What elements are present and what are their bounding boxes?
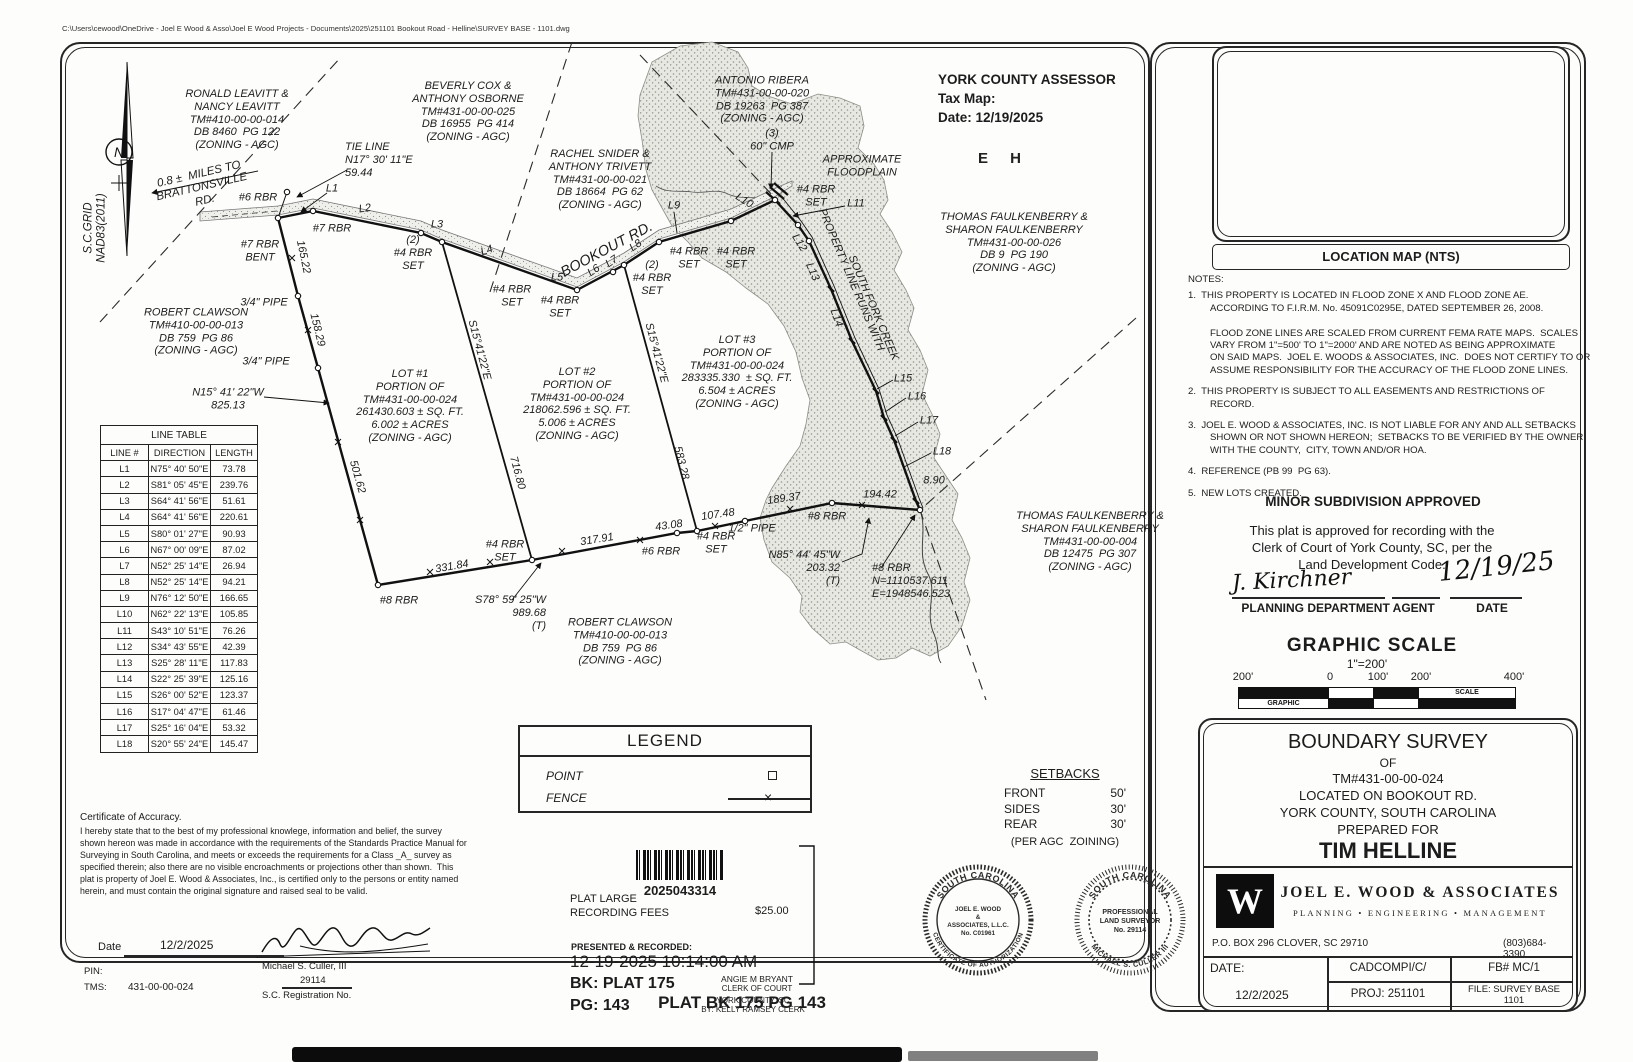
line-table-cell: L4 [101,509,149,525]
seal-center-line: LAND SURVEYOR [1100,918,1161,925]
assessor-stamp: YORK COUNTY ASSESSOR Tax Map: Date: 12/1… [938,70,1116,127]
line-table-cell: 90.93 [211,525,258,541]
surveyor-seal: SOUTH CAROLINA MICHAEL S. CULLER III PRO… [1072,862,1188,978]
firm-tagline: PLANNING • ENGINEERING • MANAGEMENT [1293,908,1547,918]
line-table-cell: L5 [101,525,149,541]
line-table-cell: L6 [101,542,149,558]
location-map-caption: LOCATION MAP (NTS) [1212,244,1570,270]
setback-key: SIDES [1004,802,1040,818]
line-table-row: L16S17° 04' 47"E61.46 [101,704,258,720]
line-table-cell: S43° 10' 51"E [149,623,211,639]
survey-prepared: PREPARED FOR [1198,822,1578,837]
firm-name: JOEL E. WOOD & ASSOCIATES [1281,884,1560,902]
north-arrow-icon: N [106,62,133,256]
scale-tick: 200' [1411,671,1431,683]
floodplain-area [638,42,970,663]
line-table-row: L15S26° 00' 52"E123.37 [101,687,258,703]
line-table-cell: 53.32 [211,720,258,736]
clerk-name: ANGIE M BRYANT [721,974,793,984]
line-table-cell: 125.16 [211,671,258,687]
setbacks-note: (PER AGC ZOINING) [990,836,1140,848]
line-table-cell: L10 [101,606,149,622]
recording-bracket [799,846,814,984]
legend-title: LEGEND [520,727,810,757]
line-table-cell: L15 [101,687,149,703]
note-item: 3. JOEL E. WOOD & ASSOCIATES, INC. IS NO… [1188,420,1580,457]
surveyor-name: Michael S. Culler, III [262,961,346,972]
authorization-seal: SOUTH CAROLINA CERTIFICATE OF AUTHORIZAT… [920,862,1036,978]
line-table-row: L17S25° 16' 04"E53.32 [101,720,258,736]
setback-key: REAR [1004,817,1037,833]
scan-artifact [908,1051,1098,1061]
line-table-cell: N52° 25' 14"E [149,558,211,574]
seal-center-line: JOEL E. WOOD [955,906,1002,913]
line-table-title: LINE TABLE [101,426,258,445]
survey-title: BOUNDARY SURVEY [1198,731,1578,754]
line-table-cell: 145.47 [211,736,258,752]
line-table-cell: N67° 00' 09"E [149,542,211,558]
line-table-cell: S17° 04' 47"E [149,704,211,720]
graphic-scale-title: GRAPHIC SCALE [1287,635,1457,657]
line-table-cell: 26.94 [211,558,258,574]
setback-row: FRONT50' [1004,786,1126,802]
tb-cad: CADCOMPI/C/ [1350,962,1427,974]
line-table-header: DIRECTION [149,445,211,461]
line-table-header: LENGTH [211,445,258,461]
line-table-cell: S20° 55' 24"E [149,736,211,752]
line-table-cell: S25° 28' 11"E [149,655,211,671]
line-table-row: L4S64° 41' 56"E220.61 [101,509,258,525]
setback-value: 30' [1110,802,1126,818]
scan-artifact [292,1047,902,1062]
certificate-body: I hereby state that to the best of my pr… [80,826,467,897]
line-table-row: L8N52° 25' 14"E94.21 [101,574,258,590]
line-table-cell: S64° 41' 56"E [149,509,211,525]
setbacks: SETBACKS FRONT50'SIDES30'REAR30' (PER AG… [990,766,1140,848]
survey-of: OF [1198,756,1578,770]
assessor-taxmap: Tax Map: [938,89,1116,108]
legend-point-label: POINT [546,769,583,783]
line-table-cell: N52° 25' 14"E [149,574,211,590]
line-table-cell: L16 [101,704,149,720]
line-table-cell: S80° 01' 27"E [149,525,211,541]
assessor-date: Date: 12/19/2025 [938,108,1116,127]
line-table-cell: 94.21 [211,574,258,590]
recording-presented: PRESENTED & RECORDED: [571,942,692,952]
line-table-row: L7N52° 25' 14"E26.94 [101,558,258,574]
line-table-cell: N76° 12' 50"E [149,590,211,606]
line-table-row: L5S80° 01' 27"E90.93 [101,525,258,541]
plat-sheet: C:\Users\cewood\OneDrive - Joel E Wood &… [0,0,1633,1062]
plat-book-footer: PLAT BK 175 PG 143 [658,993,826,1013]
line-table-cell: S34° 43' 55"E [149,639,211,655]
line-table-row: L6N67° 00' 09"E87.02 [101,542,258,558]
line-table-cell: N75° 40' 50"E [149,461,211,477]
line-table-row: L3S64° 41' 56"E51.61 [101,493,258,509]
line-table-row: L11S43° 10' 51"E76.26 [101,623,258,639]
line-table-cell: S26° 00' 52"E [149,687,211,703]
registration-number: 29114 [300,975,326,986]
line-table-row: L12S34° 43' 55"E42.39 [101,639,258,655]
line-table-cell: 87.02 [211,542,258,558]
svg-text:SOUTH CAROLINA: SOUTH CAROLINA [935,870,1022,900]
line-table-cell: 73.78 [211,461,258,477]
location-map [1212,46,1570,242]
line-table-row: L9N76° 12' 50"E166.65 [101,590,258,606]
svg-text:CERTIFICATE OF AUTHORIZATION: CERTIFICATE OF AUTHORIZATION [931,932,1025,969]
client-name: TIM HELLINE [1198,838,1578,864]
setback-value: 30' [1110,817,1126,833]
certificate-heading: Certificate of Accuracy. [80,812,182,823]
tb-fb: FB# MC/1 [1488,962,1540,974]
line-table-row: L18S20° 55' 24"E145.47 [101,736,258,752]
seal-arc-bottom: CERTIFICATE OF AUTHORIZATION [931,932,1025,969]
line-table-cell: S81° 05' 45"E [149,477,211,493]
setback-key: FRONT [1004,786,1045,802]
approval-title: MINOR SUBDIVISION APPROVED [1265,494,1481,509]
line-table-cell: L3 [101,493,149,509]
line-table-cell: L14 [101,671,149,687]
line-table-cell: L1 [101,461,149,477]
recording-datetime: 12-19-2025 10:14:00 AM [570,952,757,972]
cert-date: 12/2/2025 [160,938,213,952]
legend-fence-label: FENCE [546,791,587,805]
note-item: 4. REFERENCE (PB 99 PG 63). [1188,466,1580,478]
tms-label: TMS: [84,982,107,993]
approval-date-label: DATE [1476,601,1508,615]
scale-bar-label: SCALE [1419,688,1515,698]
scale-tick: 200' [1233,671,1253,683]
line-table-row: L2S81° 05' 45"E239.76 [101,477,258,493]
line-table-header: LINE # [101,445,149,461]
scale-bar: SCALE GRAPHIC [1238,687,1516,709]
setback-row: SIDES30' [1004,802,1126,818]
line-table-cell: 166.65 [211,590,258,606]
barcode [636,850,724,880]
line-table-cell: 220.61 [211,509,258,525]
clerk-title: CLERK OF COURT [722,984,793,993]
line-table-row: L14S22° 25' 39"E125.16 [101,671,258,687]
tb-file: FILE: SURVEY BASE 1101 [1468,984,1560,1006]
cert-date-label: Date [98,941,121,953]
tb-date: 12/2/2025 [1235,988,1288,1002]
note-item: 2. THIS PROPERTY IS SUBJECT TO ALL EASEM… [1188,386,1580,411]
agent-label: PLANNING DEPARTMENT AGENT [1241,601,1434,615]
seal-center-line: & [976,914,981,921]
note-item: 1. THIS PROPERTY IS LOCATED IN FLOOD ZON… [1188,290,1580,377]
scale-tick: 400' [1504,671,1524,683]
setback-row: REAR30' [1004,817,1126,833]
line-table-cell: 123.37 [211,687,258,703]
fence-symbol-x: × [764,789,772,805]
notes-heading: NOTES: [1188,274,1580,286]
line-table-cell: L8 [101,574,149,590]
line-table-cell: L7 [101,558,149,574]
line-table-cell: L17 [101,720,149,736]
line-table-cell: S64° 41' 56"E [149,493,211,509]
tms-value: 431-00-00-024 [128,982,194,993]
seal-center-line: PROFESSIONAL [1102,909,1158,916]
line-table: LINE TABLE LINE # DIRECTION LENGTH L1N75… [100,425,258,753]
line-table-cell: 61.46 [211,704,258,720]
recording-fee-amount: $25.00 [755,905,789,917]
line-table-cell: L11 [101,623,149,639]
survey-tm: TM#431-00-00-024 [1198,771,1578,786]
firm-address: P.O. BOX 296 CLOVER, SC 29710 [1212,938,1368,949]
seal-center-line: ASSOCIATES, L.L.C. [947,922,1009,929]
recording-fee-label: PLAT LARGE RECORDING FEES [570,893,669,920]
line-table-cell: S25° 16' 04"E [149,720,211,736]
line-table-cell: 239.76 [211,477,258,493]
line-table-cell: L13 [101,655,149,671]
graphic-scale-ratio: 1"=200' [1347,657,1387,671]
seal-center-line: No. C01961 [961,930,995,937]
surveyor-signature [262,928,430,952]
recording-page: PG: 143 [570,997,630,1015]
point-symbol-icon [768,771,777,780]
line-table-row: L10N62° 22' 13"E105.85 [101,606,258,622]
setbacks-title: SETBACKS [990,766,1140,781]
survey-county: YORK COUNTY, SOUTH CAROLINA [1198,805,1578,820]
tb-date-label: DATE: [1210,961,1244,975]
line-table-cell: 42.39 [211,639,258,655]
scale-tick: 100' [1368,671,1388,683]
scale-tick: 0 [1327,671,1333,683]
recording-book: BK: PLAT 175 [570,975,675,993]
registration-label: S.C. Registration No. [262,990,351,1001]
seal-arc-top: SOUTH CAROLINA [935,870,1022,900]
seal-center-line: No. 29114 [1114,927,1146,934]
notes: NOTES: 1. THIS PROPERTY IS LOCATED IN FL… [1188,274,1580,509]
line-table-cell: S22° 25' 39"E [149,671,211,687]
line-table-cell: 105.85 [211,606,258,622]
pin-label: PIN: [84,966,102,977]
line-table-cell: 117.83 [211,655,258,671]
line-table-cell: 51.61 [211,493,258,509]
line-table-cell: 76.26 [211,623,258,639]
line-table-cell: L9 [101,590,149,606]
line-table-cell: L12 [101,639,149,655]
line-table-cell: L18 [101,736,149,752]
line-table-row: L1N75° 40' 50"E73.78 [101,461,258,477]
line-table-cell: N62° 22' 13"E [149,606,211,622]
survey-located: LOCATED ON BOOKOUT RD. [1198,788,1578,803]
assessor-title: YORK COUNTY ASSESSOR [938,70,1116,89]
line-table-cell: L2 [101,477,149,493]
north-letter: N [114,144,125,160]
firm-logo: W [1216,874,1274,928]
line-table-row: L13S25° 28' 11"E117.83 [101,655,258,671]
setback-value: 50' [1110,786,1126,802]
graphic-bar-label: GRAPHIC [1239,699,1329,708]
tb-proj: PROJ: 251101 [1351,988,1426,1000]
stamp-letters: E H [978,150,1030,167]
